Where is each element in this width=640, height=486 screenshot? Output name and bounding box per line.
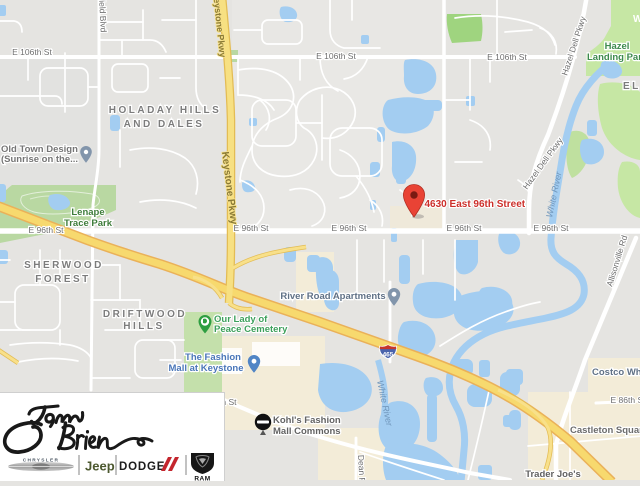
svg-text:River Road Apartments: River Road Apartments [280, 291, 385, 302]
svg-text:RAM: RAM [194, 476, 210, 482]
svg-text:Peace Cemetery: Peace Cemetery [214, 324, 288, 335]
svg-text:Jeep: Jeep [85, 459, 115, 474]
svg-text:field Blvd: field Blvd [97, 0, 109, 33]
svg-text:E 106th St: E 106th St [487, 52, 527, 62]
svg-text:DRIFTWOOD: DRIFTWOOD [103, 309, 187, 320]
svg-text:465: 465 [383, 352, 394, 359]
svg-text:(Sunrise on the...: (Sunrise on the... [1, 154, 78, 165]
svg-text:The Fashion: The Fashion [185, 352, 241, 363]
svg-text:AND DALES: AND DALES [124, 119, 205, 130]
svg-text:W: W [633, 14, 640, 25]
svg-text:E 96th St: E 96th St [332, 223, 368, 233]
svg-text:DODGE: DODGE [119, 461, 165, 473]
svg-text:Dean Rd: Dean Rd [356, 455, 368, 480]
svg-text:Mall Commons: Mall Commons [273, 426, 341, 437]
svg-text:Castleton Square: Castleton Square [570, 425, 640, 436]
svg-text:HILLS: HILLS [123, 321, 164, 332]
svg-text:Mall at Keystone: Mall at Keystone [169, 363, 244, 374]
svg-text:E 106th St: E 106th St [316, 51, 356, 61]
svg-text:EL L: EL L [623, 81, 640, 92]
svg-text:Lenape: Lenape [71, 207, 104, 218]
svg-text:Kohl's Fashion: Kohl's Fashion [273, 415, 341, 426]
svg-text:Costco Wholesale: Costco Wholesale [592, 367, 640, 378]
svg-text:Hazel: Hazel [605, 41, 630, 52]
svg-text:E 106th St: E 106th St [12, 47, 52, 57]
svg-text:HOLADAY HILLS: HOLADAY HILLS [109, 105, 222, 116]
svg-text:E 96th St: E 96th St [447, 223, 483, 233]
svg-text:E 96th St: E 96th St [29, 225, 65, 235]
svg-text:4630 East 96th Street: 4630 East 96th Street [425, 199, 526, 210]
svg-text:E 96th St: E 96th St [234, 223, 270, 233]
svg-text:E 96th St: E 96th St [534, 223, 570, 233]
svg-text:Landing Park: Landing Park [587, 52, 640, 63]
svg-text:Trader Joe's: Trader Joe's [525, 469, 581, 480]
svg-text:Trace Park: Trace Park [64, 218, 113, 229]
svg-text:SHERWOOD: SHERWOOD [24, 260, 104, 271]
svg-text:E 86th St: E 86th St [611, 395, 640, 405]
svg-text:FOREST: FOREST [35, 274, 91, 285]
